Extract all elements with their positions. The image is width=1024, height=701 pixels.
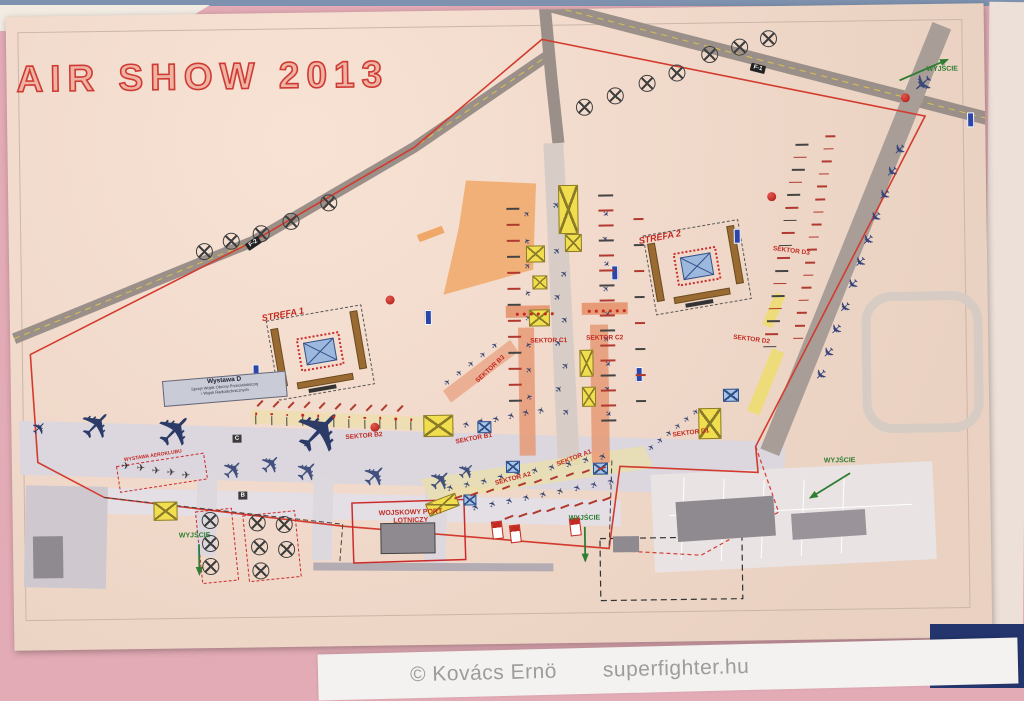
- strefa-1-label: STREFA 1: [261, 305, 305, 323]
- exit-label-southwest: WYJŚCIE: [179, 532, 211, 539]
- sector-label-d2: SEKTOR D2: [733, 334, 771, 346]
- wystawa-d-sign: Wystawa D Sprzęt Wojsk Obrony Przeciwlot…: [162, 371, 288, 407]
- gate-f2-label: F-2: [245, 236, 262, 251]
- airshow-map-sheet: ✈✈✈✈✈✈✈✈✈✈✈✈✈✈✈✈✈✈✈✈✈✈✈✈✈✈✈✈✈✈✈✈✈✈✈✈✈✈✈✈…: [6, 3, 993, 651]
- sector-label-b3: SEKTOR B3: [474, 354, 506, 384]
- photo-caption-strip: © Kovács Ernö superfighter.hu: [318, 637, 1019, 700]
- gate-f1-label: F-1: [750, 63, 767, 74]
- sector-label-d3: SEKTOR D3: [772, 245, 810, 257]
- sector-label-c2: SEKTOR C2: [586, 334, 623, 342]
- sector-label-a2: SEKTOR A2: [494, 471, 531, 487]
- sector-label-b1: SEKTOR B1: [455, 432, 493, 446]
- exit-label-northeast: WYJŚCIE: [926, 66, 958, 73]
- sector-label-b2: SEKTOR B2: [345, 431, 383, 441]
- taxiway-letter-c: C: [232, 435, 241, 443]
- map-title: AIR SHOW 2013: [16, 54, 389, 101]
- caption-site: superfighter.hu: [603, 655, 750, 683]
- sector-label-a1: SEKTOR A1: [556, 448, 593, 468]
- aeroklub-exhibit-label: WYSTAWA AEROKLUBU: [124, 448, 183, 463]
- map-labels-layer: AIR SHOW 2013 F-1 F-2 C B STREFA 1 STREF…: [6, 3, 993, 651]
- caption-copyright: © Kovács Ernö: [410, 660, 557, 688]
- strefa-2-label: STREFA 2: [638, 228, 682, 246]
- military-airport-label: WOJSKOWY PORT LOTNICZY: [364, 508, 456, 527]
- exit-label-east: WYJŚCIE: [824, 457, 856, 464]
- taxiway-letter-b: B: [238, 492, 247, 500]
- sector-label-d1: SEKTOR D1: [672, 427, 710, 438]
- sector-label-c1: SEKTOR C1: [530, 337, 567, 345]
- exit-label-south: WYJŚCIE: [569, 515, 601, 522]
